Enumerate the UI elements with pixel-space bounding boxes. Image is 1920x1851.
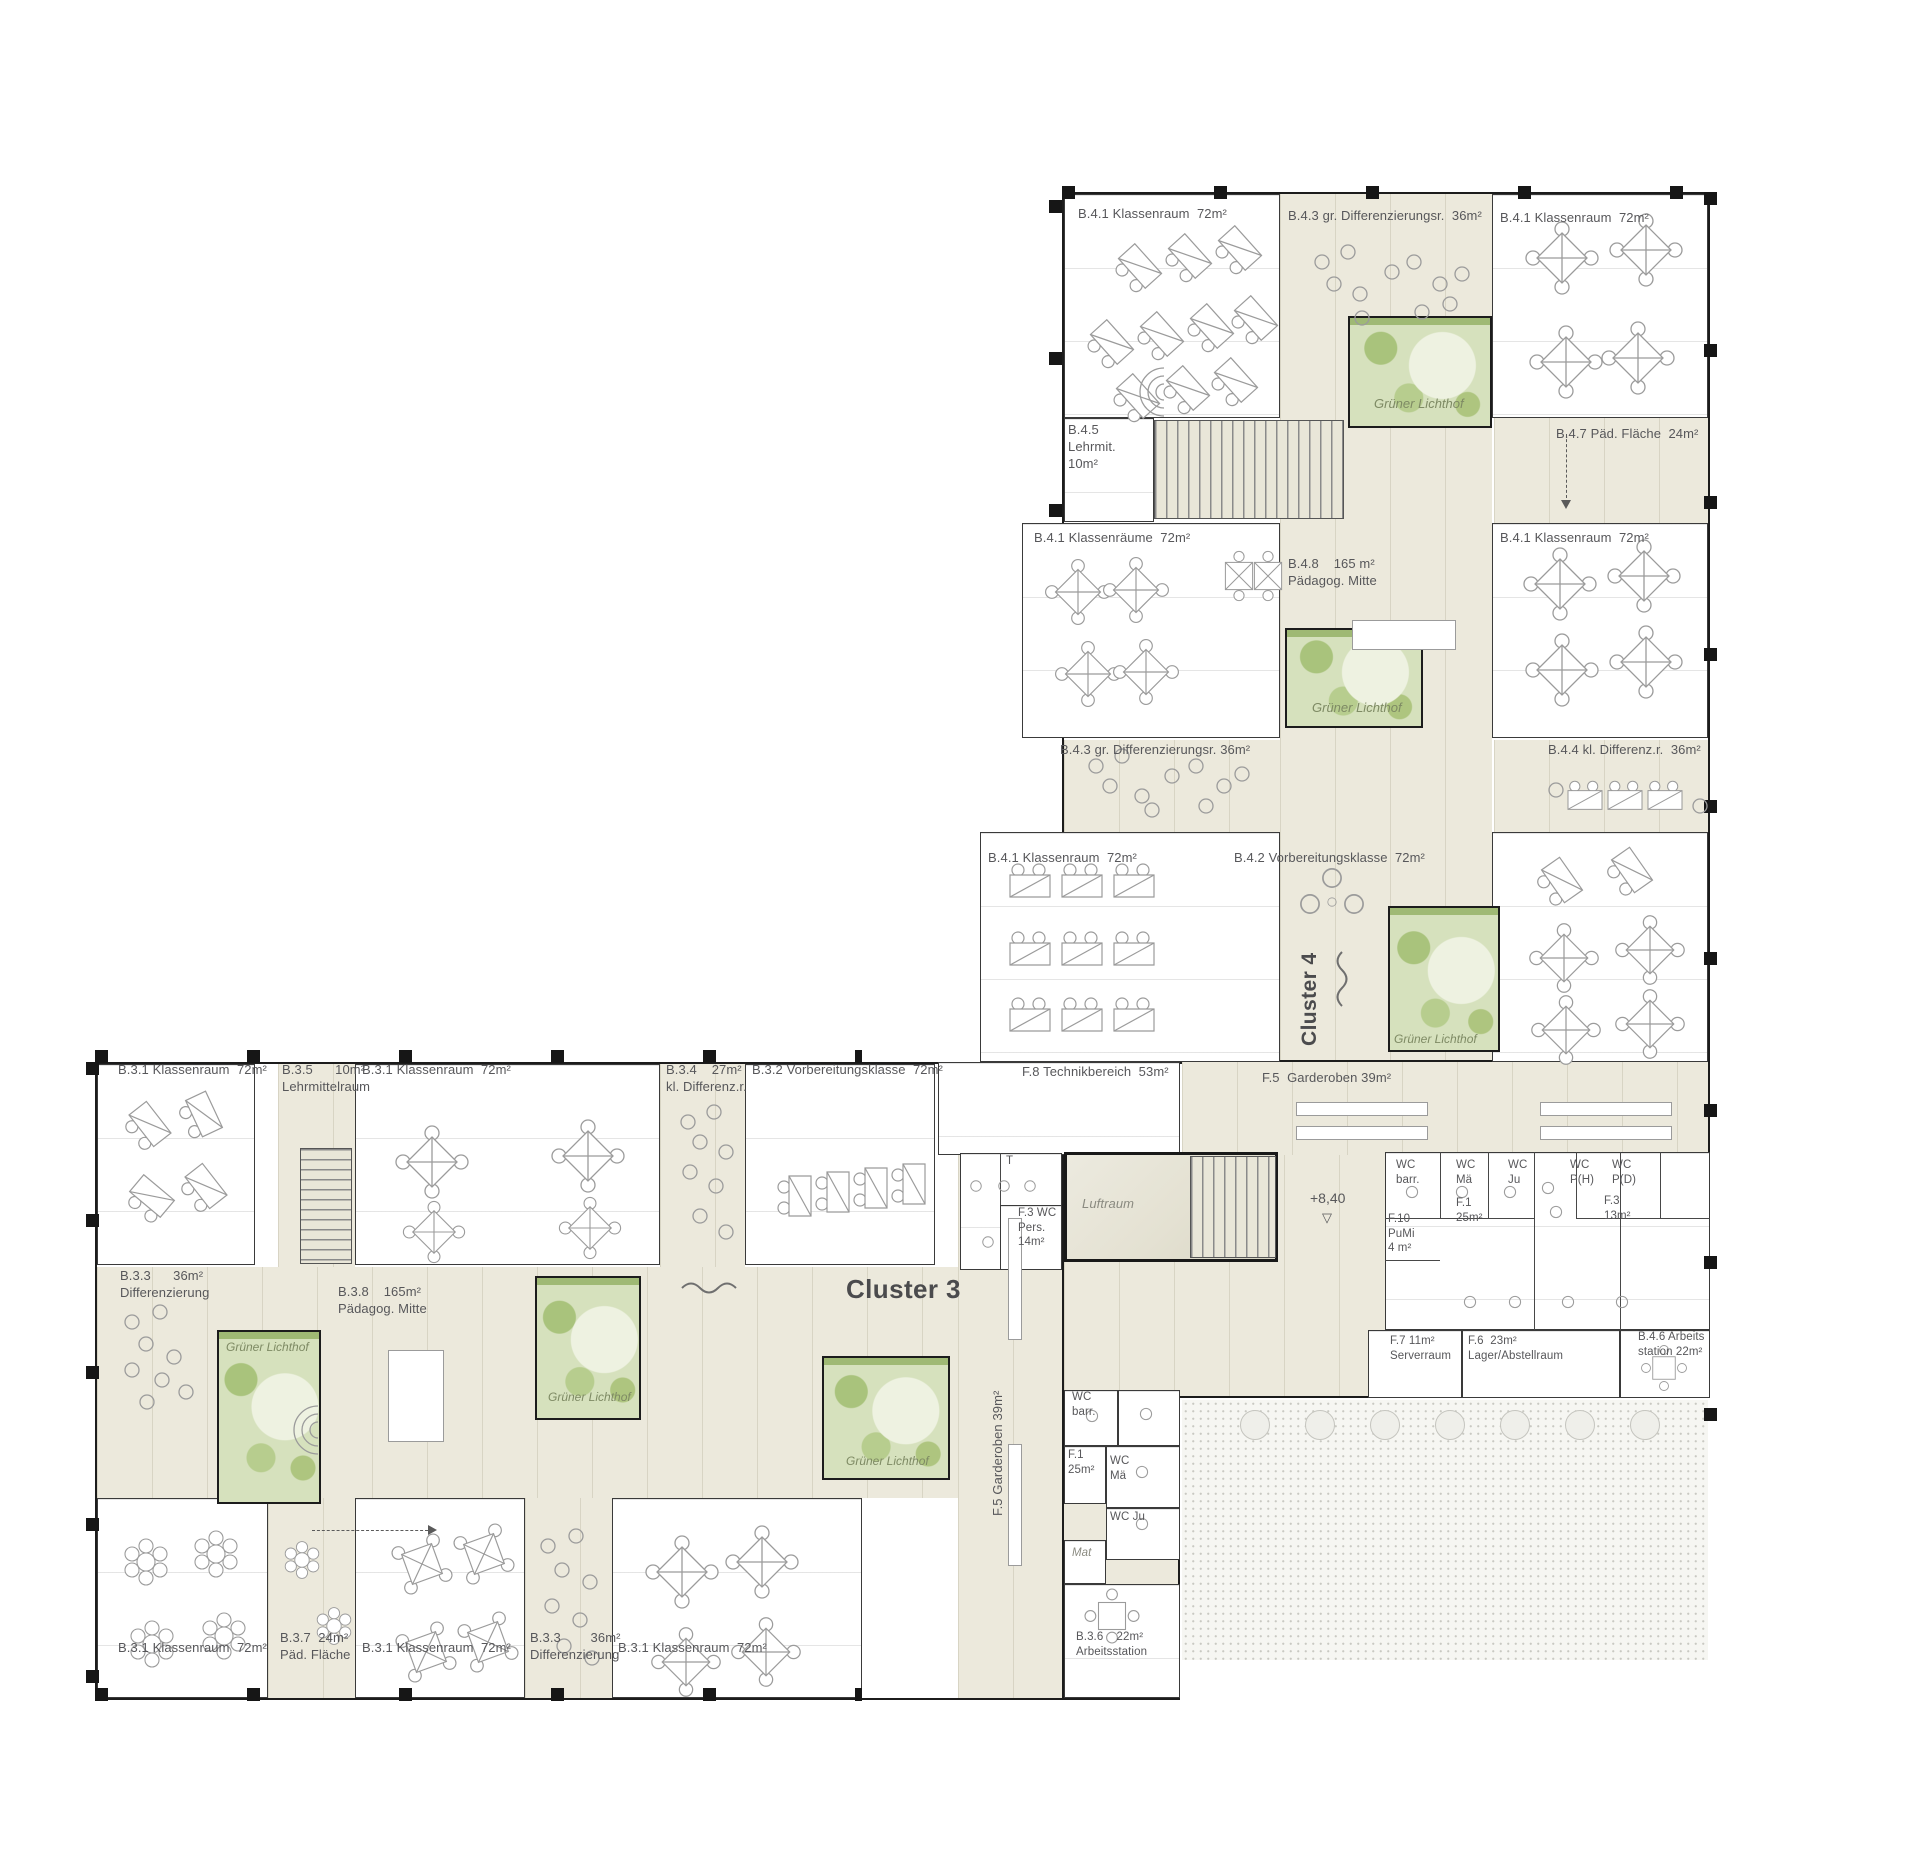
stair-mid — [1190, 1156, 1276, 1258]
room-b42-vorbereitung — [1492, 832, 1708, 1062]
level-marker-icon: ▽ — [1322, 1210, 1332, 1226]
room-label-f3-r: F.3 13m² — [1604, 1194, 1631, 1223]
room-label-b41-mid-left: B.4.1 Klassenräume 72m² — [1034, 530, 1190, 547]
courtyard-label: Grüner Lichthof — [846, 1454, 929, 1468]
group-table — [388, 1350, 444, 1442]
room-label-b45: B.4.5 Lehrmit. 10m² — [1068, 422, 1116, 473]
column-ticks — [1704, 192, 1717, 1432]
room-label-wc-ju-r: WC Ju — [1508, 1158, 1527, 1187]
room-label-f5-vertical: F.5 Garderoben 39m² — [990, 1391, 1007, 1516]
room-label-b31-bottom-right: B.3.1 Klassenraum 72m² — [618, 1640, 767, 1657]
room-b41-top-right — [1492, 194, 1708, 418]
garderobe-bench — [1540, 1126, 1672, 1140]
room-label-b38: B.3.8 165m² Pädagog. Mitte — [338, 1284, 427, 1318]
room-label-b48: B.4.8 165 m² Pädagog. Mitte — [1288, 556, 1377, 590]
room-b31-top-mid — [355, 1064, 660, 1265]
room-label-b44: B.4.4 kl. Differenz.r. 36m² — [1548, 742, 1701, 759]
zone-b37-strip — [268, 1498, 355, 1698]
floor-plan: +8,40 ▽ B.4.1 Klassenraum 72m² B.4.3 gr.… — [0, 0, 1920, 1851]
courtyard-label: Grüner Lichthof — [1374, 396, 1464, 411]
room-label-f3-wc-pers: F.3 WC Pers. 14m² — [1018, 1206, 1056, 1250]
room-label-b32: B.3.2 Vorbereitungsklasse 72m² — [752, 1062, 943, 1079]
room-b32-vorbereitung — [745, 1064, 935, 1265]
wall-divider — [1440, 1152, 1441, 1218]
room-label-f8: F.8 Technikbereich 53m² — [1022, 1064, 1169, 1081]
wall-divider — [1660, 1152, 1661, 1218]
room-label-b31-bottom-left: B.3.1 Klassenraum 72m² — [118, 1640, 267, 1657]
room-b31-bottom-mid — [355, 1498, 525, 1698]
room-label-wc-mae-b: WC Mä — [1110, 1454, 1129, 1483]
room-label-f7: F.7 11m² Serverraum — [1390, 1334, 1451, 1363]
column-ticks — [86, 1062, 99, 1700]
door-label-t: T — [1006, 1154, 1013, 1169]
courtyard-label: Grüner Lichthof — [1312, 700, 1402, 715]
room-label-b31-top-left: B.3.1 Klassenraum 72m² — [118, 1062, 267, 1079]
garderobe-bench — [1008, 1444, 1022, 1566]
zone-b33-bottom-strip — [525, 1498, 612, 1698]
room-b41-top-left — [1064, 194, 1280, 418]
room-label-b41-mid-right: B.4.1 Klassenraum 72m² — [1500, 530, 1649, 547]
room-b31-bottom-left — [97, 1498, 268, 1698]
room-label-b33-bottom: B.3.3 36m² Differenzierung — [530, 1630, 621, 1664]
room-label-b41-top-right: B.4.1 Klassenraum 72m² — [1500, 210, 1649, 227]
room-label-b41-top-left: B.4.1 Klassenraum 72m² — [1078, 206, 1227, 223]
courtyard-label: Grüner Lichthof — [1394, 1032, 1477, 1046]
skylight-icon — [1435, 1410, 1465, 1440]
room-label-f10: F.10 PuMi 4 m² — [1388, 1212, 1415, 1256]
room-label-f6: F.6 23m² Lager/Abstellraum — [1468, 1334, 1563, 1363]
arrow-down-icon — [1561, 500, 1571, 509]
room-label-wc-ju-b: WC Ju — [1110, 1510, 1145, 1525]
arrow-line — [312, 1530, 428, 1531]
courtyard-label: Grüner Lichthof — [226, 1340, 309, 1354]
skylight-icon — [1370, 1410, 1400, 1440]
column-ticks — [1062, 186, 1710, 199]
stair-upper-wing — [1154, 420, 1344, 519]
garderobe-bench — [1540, 1102, 1672, 1116]
room-label-b31-top-mid: B.3.1 Klassenraum 72m² — [362, 1062, 511, 1079]
courtyard-label: Grüner Lichthof — [548, 1390, 631, 1404]
skylight-icon — [1630, 1410, 1660, 1440]
room-b31-bottom-right — [612, 1498, 862, 1698]
room-label-f1-r: F.1 25m² — [1456, 1196, 1483, 1225]
skylight-icon — [1305, 1410, 1335, 1440]
room-label-b37: B.3.7 24m² Päd. Fläche — [280, 1630, 350, 1664]
skylight-icon — [1565, 1410, 1595, 1440]
column-ticks — [95, 1688, 862, 1701]
wall-divider — [1385, 1260, 1440, 1261]
room-b31-top-left — [97, 1064, 255, 1265]
room-label-mat: Mat — [1072, 1546, 1091, 1561]
room-label-luftraum: Luftraum — [1082, 1196, 1134, 1213]
garderobe-bench — [1296, 1126, 1428, 1140]
wall-divider — [1534, 1152, 1535, 1330]
skylight-icon — [1500, 1410, 1530, 1440]
room-label-b36: B.3.6 22m² Arbeitsstation — [1076, 1630, 1147, 1659]
arrow-line — [1566, 434, 1567, 498]
stair-cluster3 — [300, 1148, 352, 1264]
level-marker: +8,40 — [1310, 1190, 1345, 1206]
cluster3-title: Cluster 3 — [846, 1274, 961, 1305]
room-label-b43-top: B.4.3 gr. Differenzierungsr. 36m² — [1288, 208, 1482, 225]
room-label-b47: B.4.7 Päd. Fläche 24m² — [1556, 426, 1698, 443]
wall-divider — [1576, 1218, 1710, 1219]
room-b41-mid-right — [1492, 523, 1708, 738]
skylight-icon — [1240, 1410, 1270, 1440]
room-b41-mid-left — [1022, 523, 1280, 738]
room-label-wc-ph: WC P(H) — [1570, 1158, 1594, 1187]
room-sink — [1118, 1390, 1180, 1446]
room-label-f1-b: F.1 25m² — [1068, 1448, 1095, 1477]
room-label-b42: B.4.2 Vorbereitungsklasse 72m² — [1234, 850, 1425, 867]
wall-divider — [1000, 1153, 1001, 1205]
room-label-wc-barr-r: WC barr. — [1396, 1158, 1420, 1187]
wall-divider — [1488, 1152, 1489, 1218]
courtyard-3 — [1388, 906, 1500, 1052]
arrow-right-icon — [428, 1525, 437, 1535]
group-table — [1352, 620, 1456, 650]
room-label-b41-bottom-left: B.4.1 Klassenraum 72m² — [988, 850, 1137, 867]
courtyard-4 — [217, 1330, 321, 1504]
courtyard-1 — [1348, 316, 1492, 428]
room-label-b35: B.3.5 10m² Lehrmittelraum — [282, 1062, 370, 1096]
room-label-b34: B.3.4 27m² kl. Differenz.r. — [666, 1062, 747, 1096]
room-label-f5-top: F.5 Garderoben 39m² — [1262, 1070, 1391, 1087]
cluster4-title: Cluster 4 — [1298, 953, 1322, 1046]
room-label-b46: B.4.6 Arbeits station 22m² — [1638, 1330, 1705, 1359]
garderobe-bench — [1296, 1102, 1428, 1116]
room-label-b31-bottom-mid: B.3.1 Klassenraum 72m² — [362, 1640, 511, 1657]
room-label-wc-barr-b: WC barr. — [1072, 1390, 1096, 1419]
room-label-wc-mae-r: WC Mä — [1456, 1158, 1475, 1187]
room-label-b43-lower: B.4.3 gr. Differenzierungsr. 36m² — [1060, 742, 1250, 759]
room-label-wc-pd: WC P(D) — [1612, 1158, 1636, 1187]
column-ticks — [1049, 200, 1062, 520]
room-label-b33-top: B.3.3 36m² Differenzierung — [120, 1268, 209, 1302]
